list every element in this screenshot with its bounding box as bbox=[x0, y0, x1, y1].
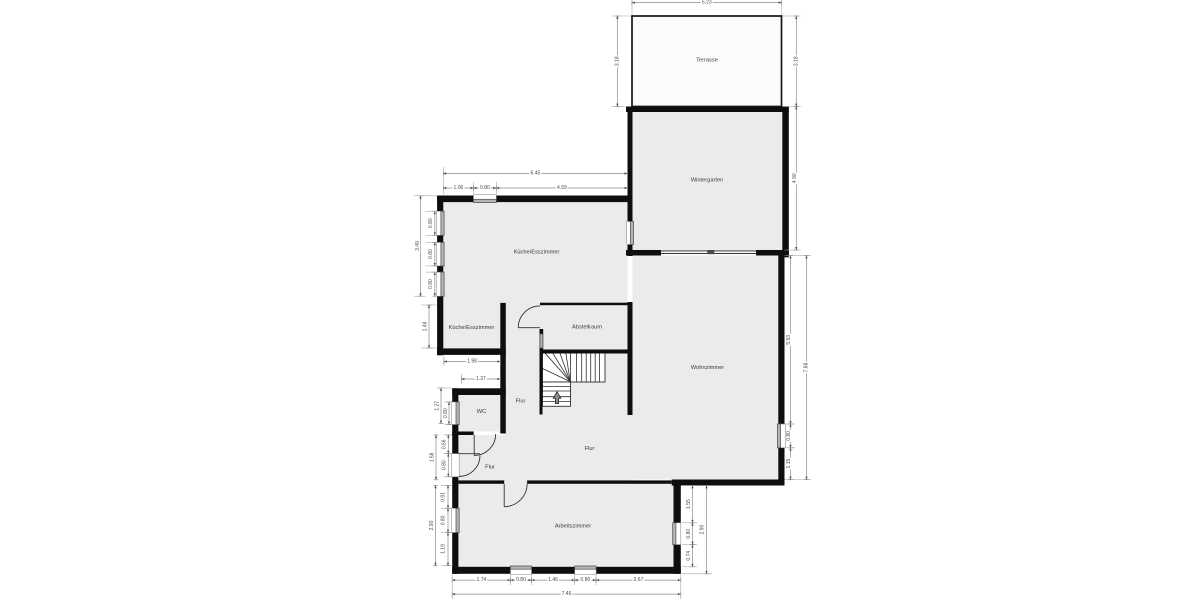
svg-text:WC: WC bbox=[477, 409, 486, 415]
svg-text:Abstellraum: Abstellraum bbox=[572, 325, 602, 331]
svg-text:1.55: 1.55 bbox=[686, 499, 692, 509]
svg-text:0.80: 0.80 bbox=[428, 279, 434, 289]
svg-text:7.88: 7.88 bbox=[804, 362, 810, 372]
svg-text:Wintergarten: Wintergarten bbox=[691, 178, 724, 184]
svg-text:4.90: 4.90 bbox=[792, 173, 798, 183]
svg-text:2.90: 2.90 bbox=[700, 525, 706, 535]
svg-text:0.80: 0.80 bbox=[442, 460, 448, 470]
svg-text:3.18: 3.18 bbox=[614, 56, 620, 66]
svg-text:Flur: Flur bbox=[516, 399, 526, 405]
svg-text:7.46: 7.46 bbox=[562, 591, 572, 597]
svg-text:0.80: 0.80 bbox=[480, 185, 490, 191]
svg-text:0.80: 0.80 bbox=[441, 515, 447, 525]
svg-text:1.15: 1.15 bbox=[786, 459, 792, 469]
svg-text:1.58: 1.58 bbox=[430, 452, 436, 462]
svg-text:1.37: 1.37 bbox=[476, 376, 486, 382]
svg-text:Terrasse: Terrasse bbox=[696, 58, 718, 64]
svg-text:4.59: 4.59 bbox=[557, 185, 567, 191]
svg-text:Küche/Esszimmer: Küche/Esszimmer bbox=[514, 250, 560, 256]
svg-text:Arbeitszimmer: Arbeitszimmer bbox=[555, 524, 591, 530]
svg-text:0.80: 0.80 bbox=[581, 577, 591, 583]
svg-text:1.27: 1.27 bbox=[435, 401, 441, 411]
svg-text:Flur: Flur bbox=[485, 465, 495, 471]
svg-text:1.46: 1.46 bbox=[548, 577, 558, 583]
svg-text:5.23: 5.23 bbox=[702, 0, 712, 6]
svg-text:0.80: 0.80 bbox=[686, 529, 692, 539]
svg-text:1.48: 1.48 bbox=[423, 321, 429, 331]
svg-text:0.80: 0.80 bbox=[428, 218, 434, 228]
svg-text:Flur: Flur bbox=[585, 446, 595, 452]
svg-text:3.49: 3.49 bbox=[415, 241, 421, 251]
svg-text:5.93: 5.93 bbox=[786, 335, 792, 345]
svg-text:0.74: 0.74 bbox=[686, 551, 692, 561]
svg-text:0.80: 0.80 bbox=[786, 431, 792, 441]
svg-text:1.06: 1.06 bbox=[454, 185, 464, 191]
svg-text:1.19: 1.19 bbox=[441, 544, 447, 554]
svg-text:1.74: 1.74 bbox=[477, 577, 487, 583]
svg-text:0.80: 0.80 bbox=[516, 577, 526, 583]
svg-text:2.90: 2.90 bbox=[429, 520, 435, 530]
svg-text:3.18: 3.18 bbox=[793, 56, 799, 66]
svg-text:1.98: 1.98 bbox=[467, 359, 477, 365]
svg-text:0.80: 0.80 bbox=[428, 249, 434, 259]
svg-text:0.80: 0.80 bbox=[443, 408, 449, 418]
svg-text:Wohnzimmer: Wohnzimmer bbox=[691, 365, 725, 371]
svg-text:Küche/Esszimmer: Küche/Esszimmer bbox=[449, 325, 495, 331]
svg-text:0.91: 0.91 bbox=[441, 492, 447, 502]
svg-text:0.66: 0.66 bbox=[442, 439, 448, 449]
svg-text:2.67: 2.67 bbox=[634, 577, 644, 583]
svg-text:6.45: 6.45 bbox=[531, 171, 541, 177]
